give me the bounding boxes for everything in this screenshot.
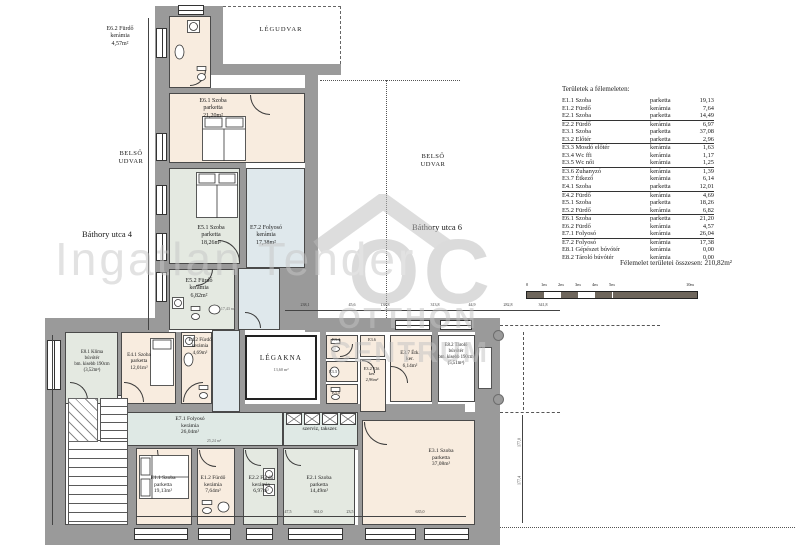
scale-segment	[561, 292, 578, 298]
row-area-value: 4,57	[688, 223, 714, 230]
row-room-name: E5.2 Fürdő	[562, 207, 650, 214]
row-material: kerámia	[650, 168, 688, 175]
bathory-utca-6-label: Báthory utca 6	[367, 222, 507, 232]
row-room-name: E3.6 Zuhanyzó	[562, 168, 650, 175]
wall	[305, 75, 318, 332]
row-room-name: E4.1 Szoba	[562, 183, 650, 190]
room-e61-label-line: 21,20m²	[143, 113, 283, 120]
scale-segment	[578, 292, 595, 298]
row-area-value: 17,38	[688, 239, 714, 246]
row-material: parketta	[650, 128, 688, 135]
room-e36-label-line: E3.6	[302, 337, 442, 342]
room-e82-label-line: (5,51m²)	[386, 361, 526, 367]
shaft-x-box	[304, 413, 320, 425]
room-e62-label: E6.2 Fürdőkerámia4,57m²	[50, 26, 190, 48]
row-material: parketta	[650, 183, 688, 190]
row-room-name: E3.7 Étkező	[562, 175, 650, 182]
szerviz-label: szerviz, takszer.	[250, 426, 390, 433]
room-e35-label: E3.5	[266, 390, 406, 395]
stairs-diagonal-hatch	[68, 398, 98, 442]
dim-177-4-line: 177,4	[518, 410, 523, 550]
area-table-row: E5.1 Szobaparketta18,26	[562, 199, 714, 207]
row-area-value: 1,63	[688, 144, 714, 151]
area-table-title: Területek a félemeleten:	[562, 85, 714, 93]
room-e62-label-line: E6.2 Fürdő	[50, 26, 190, 33]
bathory-utca-6-label-line: Báthory utca 6	[367, 222, 507, 232]
area-table-row: E6.2 Fürdőkerámia4,57	[562, 223, 714, 231]
belso-udvar-right-label-line: BELSŐ	[363, 153, 503, 161]
row-area-value: 6,82	[688, 207, 714, 214]
toilet-icon	[196, 66, 207, 82]
toilet-icon	[201, 500, 213, 515]
window	[156, 185, 167, 215]
room-e36-label: E3.6	[302, 337, 442, 342]
row-room-name: E1.1 Szoba	[562, 97, 650, 104]
wall	[280, 268, 305, 330]
scale-segment	[527, 292, 544, 298]
legakna-label-line: LÉGAKNA	[211, 354, 351, 363]
area-table-row: E3.5 Wc nőikerámia1,25	[562, 159, 714, 168]
row-room-name: E1.2 Fürdő	[562, 105, 650, 112]
row-room-name: E6.2 Fürdő	[562, 223, 650, 230]
row-room-name: E5.1 Szoba	[562, 199, 650, 206]
row-material: kerámia	[650, 152, 688, 159]
area-table-row: E7.1 Folyosókerámia26,04	[562, 230, 714, 239]
room-e31-label-line: 37,08m²	[371, 461, 511, 468]
row-area-value: 2,96	[688, 136, 714, 143]
room-e32-label-line: 2,96m²	[302, 377, 442, 382]
room-e71-label-line: 26,04m²	[120, 429, 260, 436]
row-area-value: 1,17	[688, 152, 714, 159]
scale-label: 2m	[558, 282, 564, 287]
scale-label: 3m	[575, 282, 581, 287]
dim-341-8: 341,8	[473, 303, 613, 308]
bedv-icon	[196, 172, 238, 218]
dimension-line	[136, 516, 466, 517]
scale-segment	[595, 292, 612, 298]
belso-udvar-right-label-line: UDVAR	[363, 161, 503, 169]
room-e21-label: E2.1 Szobaparketta14,49m²	[249, 475, 389, 495]
room-e72-label: E7.2 Folyosókerámia17,38m²	[196, 225, 336, 247]
room-e52-label-line: E5.2 Fürdő	[129, 278, 269, 285]
belso-udvar-left-label-line: BELSŐ	[61, 150, 201, 158]
row-material: kerámia	[650, 192, 688, 199]
row-material: parketta	[650, 215, 688, 222]
row-area-value: 21,20	[688, 215, 714, 222]
room-e61-label-line: parketta	[143, 105, 283, 112]
row-area-value: 12,01	[688, 183, 714, 190]
row-material: kerámia	[650, 144, 688, 151]
row-material: parketta	[650, 199, 688, 206]
row-material: kerámia	[650, 207, 688, 214]
scale-label: 10m	[686, 282, 694, 287]
area-table-row: E3.4 Wc ffikerámia1,17	[562, 152, 714, 160]
room-e61-label: E6.1 Szobaparketta21,20m²	[143, 98, 283, 120]
boundary-dash-line	[320, 80, 460, 81]
area-table-row: E8.1 Gépészet búvótérkerámia0,00	[562, 246, 714, 254]
area-table-row: E2.1 Szobaparketta14,49	[562, 112, 714, 121]
row-room-name: E6.1 Szoba	[562, 215, 650, 222]
row-area-value: 26,04	[688, 230, 714, 237]
row-material: kerámia	[650, 246, 688, 253]
boundary-dash-line	[500, 325, 660, 326]
row-material: kerámia	[650, 223, 688, 230]
area-table-row: E1.2 Fürdőkerámia7,64	[562, 105, 714, 113]
row-material: kerámia	[650, 175, 688, 182]
scale-label: 1m	[541, 282, 547, 287]
window	[178, 5, 204, 15]
dim-635-0: 635,0	[350, 510, 490, 515]
window	[395, 320, 430, 330]
legudvar-label-line: LÉGUDVAR	[211, 26, 351, 34]
wall-bump	[493, 394, 504, 405]
room-e21-label-line: parketta	[249, 482, 389, 489]
scale-label: 0	[526, 282, 528, 287]
room-e71-label: E7.1 Folyosókerámia26,04m²	[120, 416, 260, 436]
area-table-row: E5.2 Fürdőkerámia6,82	[562, 207, 714, 216]
scale-label: 5m	[609, 282, 615, 287]
row-area-value: 37,08	[688, 128, 714, 135]
room-e41-label-line: 12,01m²	[69, 365, 209, 371]
room-e61-label-line: E6.1 Szoba	[143, 98, 283, 105]
scale-segment	[544, 292, 561, 298]
room-e62-label-line: kerámia	[50, 33, 190, 40]
row-area-value: 0,00	[688, 246, 714, 253]
row-room-name: E2.1 Szoba	[562, 112, 650, 119]
boundary-dash-line	[386, 80, 387, 332]
area-table-row: E4.2 Fürdőkerámia4,69	[562, 192, 714, 200]
legudvar-area	[223, 6, 341, 64]
scale-bar: 01m2m3m4m5m10m	[524, 282, 704, 302]
row-area-value: 14,49	[688, 112, 714, 119]
scale-bar-ruler	[526, 291, 698, 299]
row-room-name: E3.3 Mosdó előtér	[562, 144, 650, 151]
row-area-value: 4,69	[688, 192, 714, 199]
legudvar-label: LÉGUDVAR	[211, 26, 351, 34]
room-e72-label-line: E7.2 Folyosó	[196, 225, 336, 232]
room-e52-label: E5.2 Fürdőkerámia6,82m²	[129, 278, 269, 300]
area-table-row: E7.2 Folyosókerámia17,38	[562, 239, 714, 247]
row-area-value: 19,13	[688, 97, 714, 104]
window	[424, 528, 469, 540]
row-area-value: 6,14	[688, 175, 714, 182]
row-material: kerámia	[650, 159, 688, 166]
row-material: kerámia	[650, 239, 688, 246]
shaft-x-box	[322, 413, 338, 425]
row-area-value: 6,97	[688, 121, 714, 128]
window	[246, 528, 273, 540]
row-area-value: 7,64	[688, 105, 714, 112]
row-material: kerámia	[650, 230, 688, 237]
area-table-row: E3.7 Étkezőkerámia6,14	[562, 175, 714, 183]
row-room-name: E7.1 Folyosó	[562, 230, 650, 237]
row-area-value: 1,25	[688, 159, 714, 166]
shaft-x-box	[286, 413, 302, 425]
shaft-x-box	[340, 413, 356, 425]
legakna-label: LÉGAKNA	[211, 354, 351, 363]
dim-177-4: 177,4	[518, 410, 523, 550]
room-e31-label-line: E3.1 Szoba	[371, 448, 511, 455]
area-table: Területek a félemeleten: E1.1 Szobaparke…	[562, 85, 714, 261]
window	[134, 528, 188, 540]
corridor-area-e71: 25,24 m²	[144, 439, 284, 444]
total-value: 210,82m²	[704, 259, 732, 267]
area-table-row: E3.1 Szobaparketta37,08	[562, 128, 714, 136]
room-e72-label-line: 17,38m²	[196, 240, 336, 247]
area-table-rows: E1.1 Szobaparketta19,13E1.2 Fürdőkerámia…	[562, 97, 714, 261]
wall	[211, 64, 341, 75]
window	[198, 528, 231, 540]
row-material: parketta	[650, 97, 688, 104]
dim-341-8-line: 341,8	[473, 303, 613, 308]
row-material: parketta	[650, 112, 688, 119]
row-room-name: E7.2 Folyosó	[562, 239, 650, 246]
room-e71-label-line: kerámia	[120, 423, 260, 430]
room-e21-label-line: 14,49m²	[249, 488, 389, 495]
boundary-dash-line	[500, 412, 560, 413]
window	[365, 528, 416, 540]
row-room-name: E3.1 Szoba	[562, 128, 650, 135]
floorplan-document: LÉGUDVARE6.2 Fürdőkerámia4,57m²BELSŐUDVA…	[0, 0, 800, 557]
total-label: Félemelet területei összesen:	[620, 259, 703, 267]
room-e31-label: E3.1 Szobaparketta37,08m²	[371, 448, 511, 468]
area-table-row: E6.1 Szobaparketta21,20	[562, 215, 714, 223]
window	[440, 320, 472, 330]
area-table-total: Félemelet területei összesen: 210,82m²	[560, 259, 792, 267]
area-table-row: E4.1 Szobaparketta12,01	[562, 183, 714, 192]
row-material: parketta	[650, 136, 688, 143]
room-e21-label-line: E2.1 Szoba	[249, 475, 389, 482]
belso-udvar-left-label: BELSŐUDVAR	[61, 150, 201, 166]
room-e72a	[246, 168, 305, 268]
dim-635-0-line: 635,0	[350, 510, 490, 515]
row-room-name: E8.1 Gépészet búvótér	[562, 246, 650, 253]
belso-udvar-right-label: BELSŐUDVAR	[363, 153, 503, 169]
corridor-area-e71-line: 25,24 m²	[144, 439, 284, 444]
area-table-row: E3.2 Előtérparketta2,96	[562, 136, 714, 145]
row-area-value: 1,39	[688, 168, 714, 175]
area-table-row: E3.3 Mosdó előtérkerámia1,63	[562, 144, 714, 152]
szerviz-label-line: szerviz, takszer.	[250, 426, 390, 433]
bedv-icon	[202, 116, 246, 161]
row-room-name: E3.4 Wc ffi	[562, 152, 650, 159]
room-e82-label: E8.2 Tárolóbúvótérbm. kisebb 190cm(5,51m…	[386, 343, 526, 366]
row-material: kerámia	[650, 121, 688, 128]
floorplan-drawing: LÉGUDVARE6.2 Fürdőkerámia4,57m²BELSŐUDVA…	[0, 0, 800, 557]
scale-segment	[613, 292, 697, 298]
room-e31-label-line: parketta	[371, 455, 511, 462]
window	[288, 528, 343, 540]
row-area-value: 18,26	[688, 199, 714, 206]
row-material: kerámia	[650, 105, 688, 112]
room-e72-label-line: kerámia	[196, 232, 336, 239]
scale-label: 4m	[592, 282, 598, 287]
room-e62-label-line: 4,57m²	[50, 41, 190, 48]
room-e71-label-line: E7.1 Folyosó	[120, 416, 260, 423]
area-table-row: E1.1 Szobaparketta19,13	[562, 97, 714, 105]
area-table-row: E2.2 Fürdőkerámia6,97	[562, 121, 714, 129]
row-room-name: E4.2 Fürdő	[562, 192, 650, 199]
wall-bump	[493, 330, 504, 341]
dimension-line	[285, 310, 560, 311]
room-e52-label-line: 6,82m²	[129, 293, 269, 300]
wall	[45, 318, 155, 332]
boundary-dash-line	[500, 527, 795, 528]
row-room-name: E3.5 Wc női	[562, 159, 650, 166]
row-room-name: E3.2 Előtér	[562, 136, 650, 143]
row-room-name: E2.2 Fürdő	[562, 121, 650, 128]
belso-udvar-left-label-line: UDVAR	[61, 158, 201, 166]
room-e52-label-line: kerámia	[129, 285, 269, 292]
room-e35-label-line: E3.5	[266, 390, 406, 395]
toilet-icon	[198, 385, 209, 400]
